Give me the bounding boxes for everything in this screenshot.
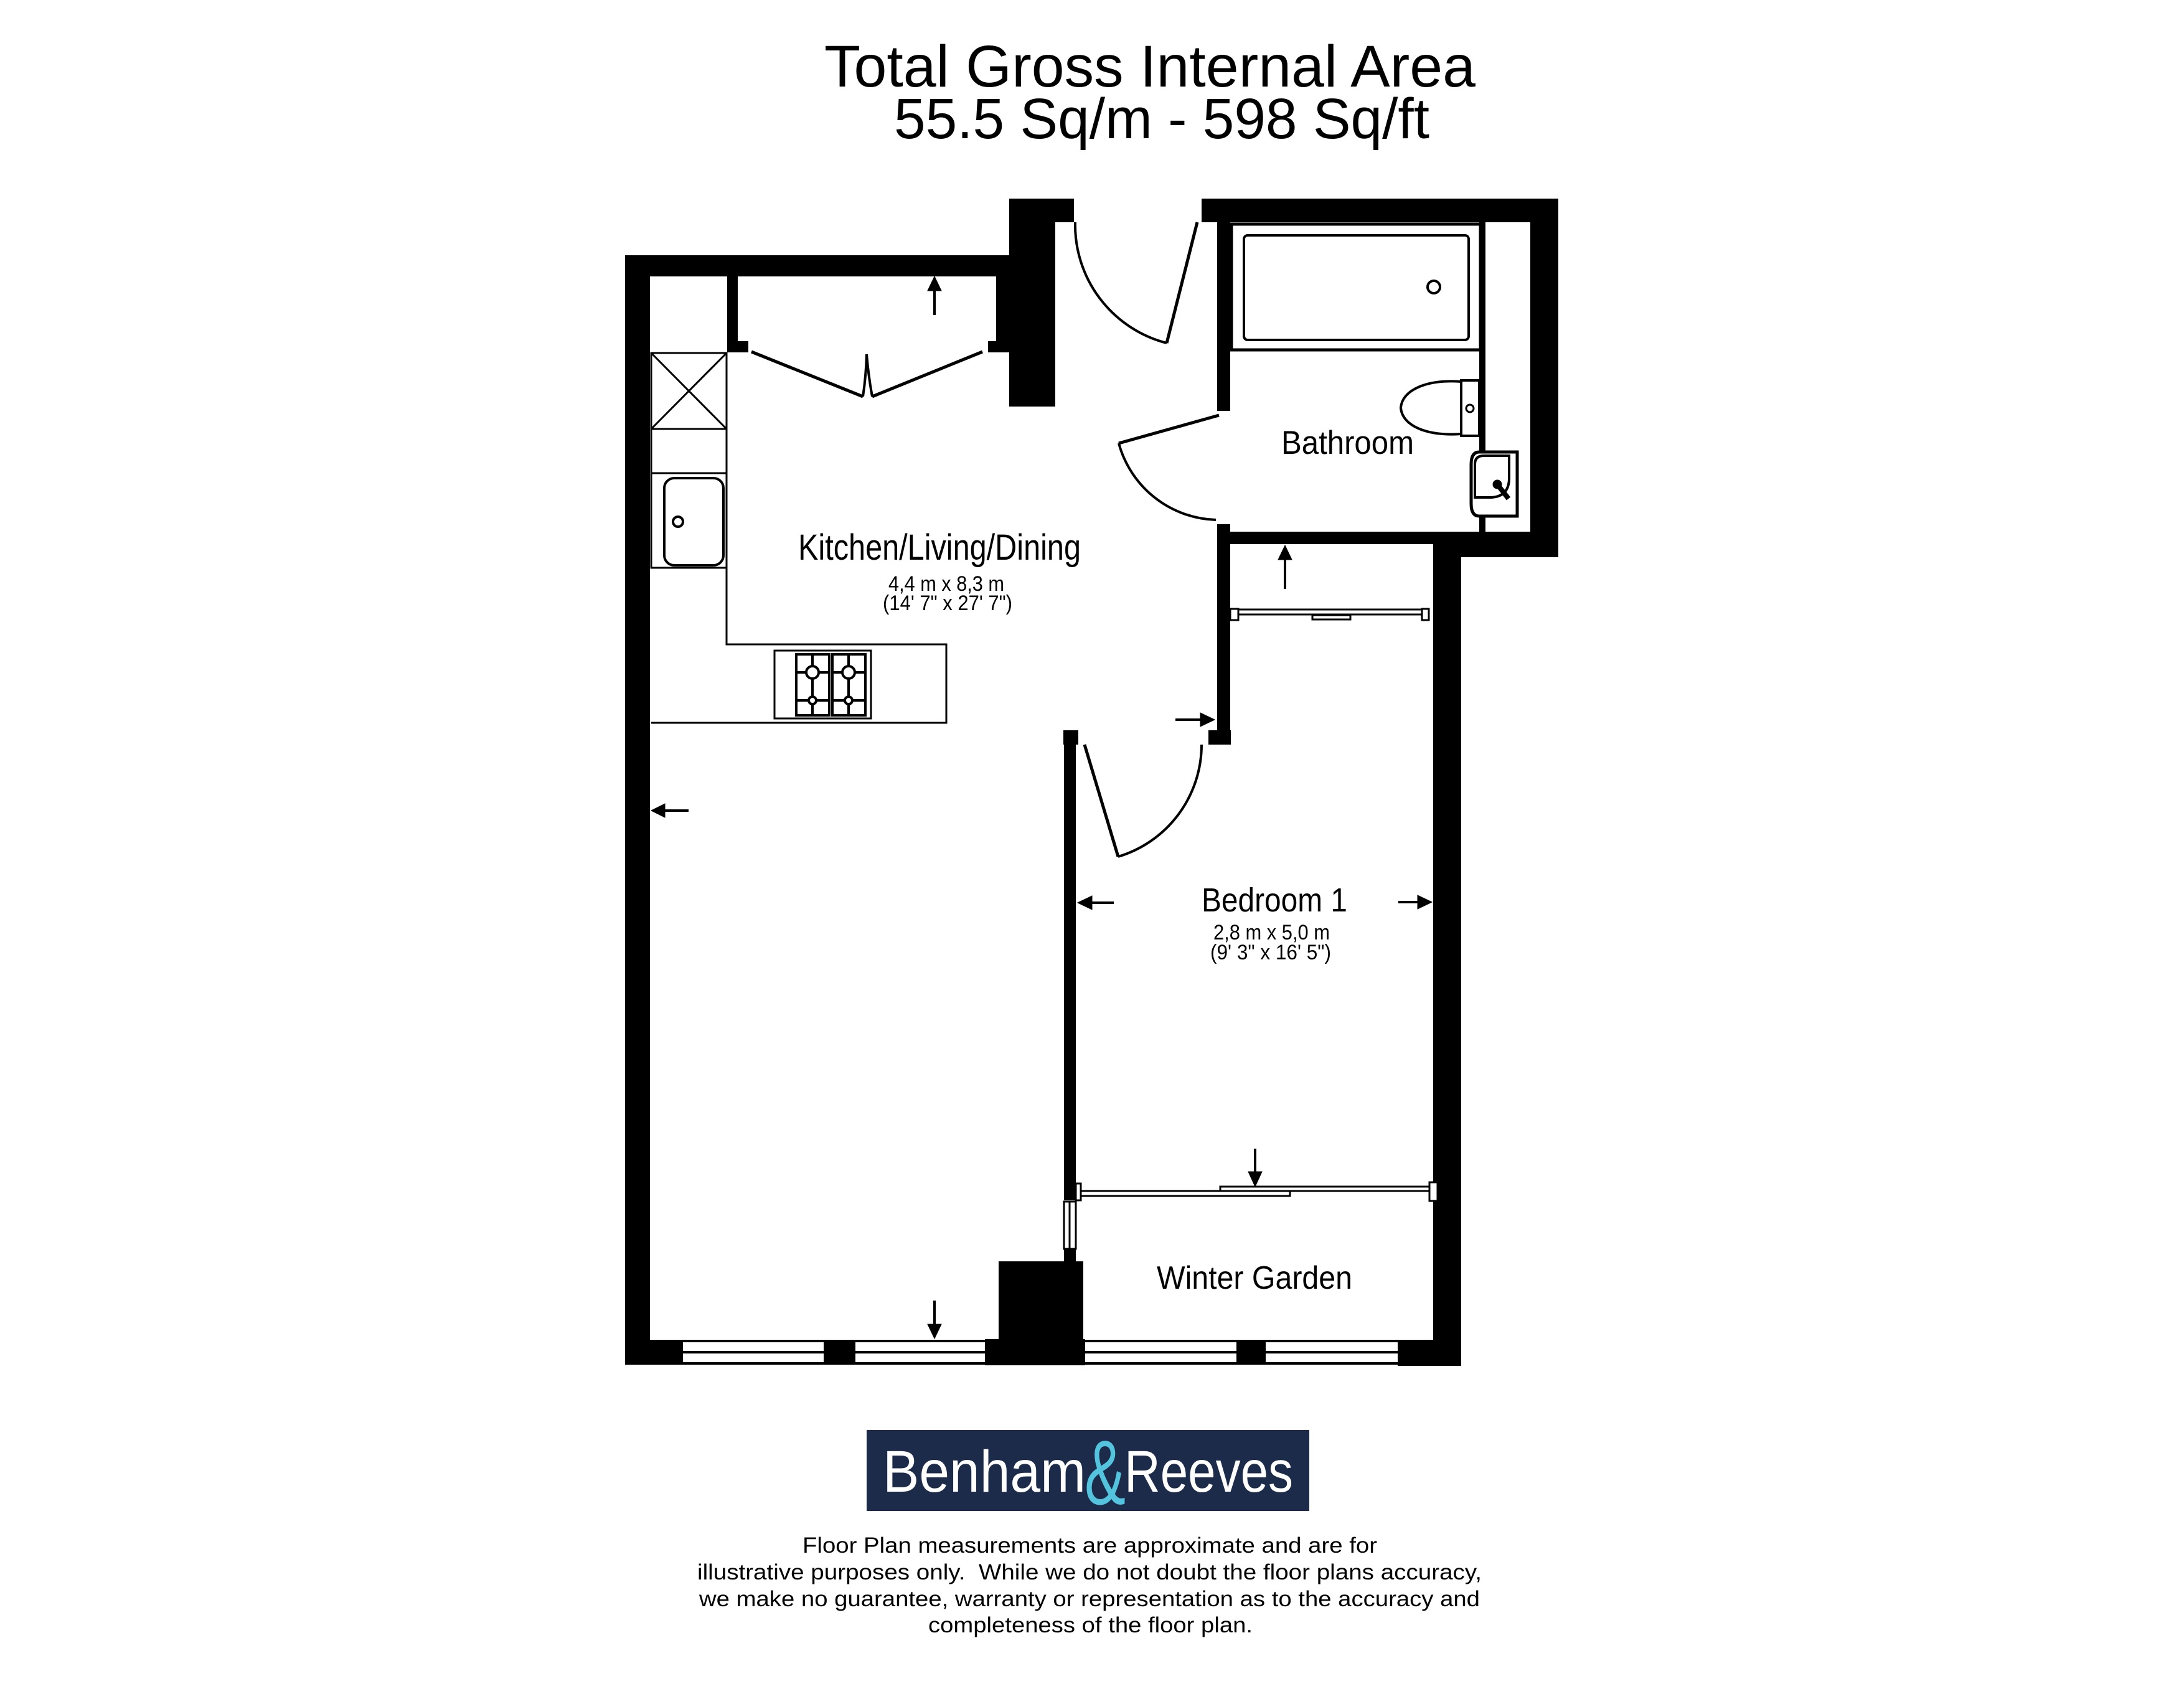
svg-text:&: & <box>1085 1422 1126 1524</box>
svg-text:Reeves: Reeves <box>1124 1439 1293 1505</box>
svg-text:(9' 3" x 16' 5"): (9' 3" x 16' 5") <box>1210 941 1331 964</box>
svg-text:completeness of the floor plan: completeness of the floor plan. <box>928 1613 1253 1637</box>
svg-text:Bedroom 1: Bedroom 1 <box>1202 882 1347 919</box>
svg-text:illustrative purposes only. W: illustrative purposes only. While we do … <box>697 1560 1482 1584</box>
svg-text:Winter Garden: Winter Garden <box>1157 1260 1352 1296</box>
svg-text:55.5 Sq/m - 598 Sq/ft: 55.5 Sq/m - 598 Sq/ft <box>894 87 1429 151</box>
svg-text:Floor Plan measurements are ap: Floor Plan measurements are approximate … <box>803 1533 1377 1558</box>
svg-text:(14' 7" x 27' 7"): (14' 7" x 27' 7") <box>883 591 1012 615</box>
svg-text:we make no guarantee, warranty: we make no guarantee, warranty or repres… <box>699 1587 1480 1611</box>
svg-text:Bathroom: Bathroom <box>1281 425 1414 461</box>
svg-text:Kitchen/Living/Dining: Kitchen/Living/Dining <box>798 527 1081 568</box>
svg-text:Benham: Benham <box>883 1439 1086 1505</box>
